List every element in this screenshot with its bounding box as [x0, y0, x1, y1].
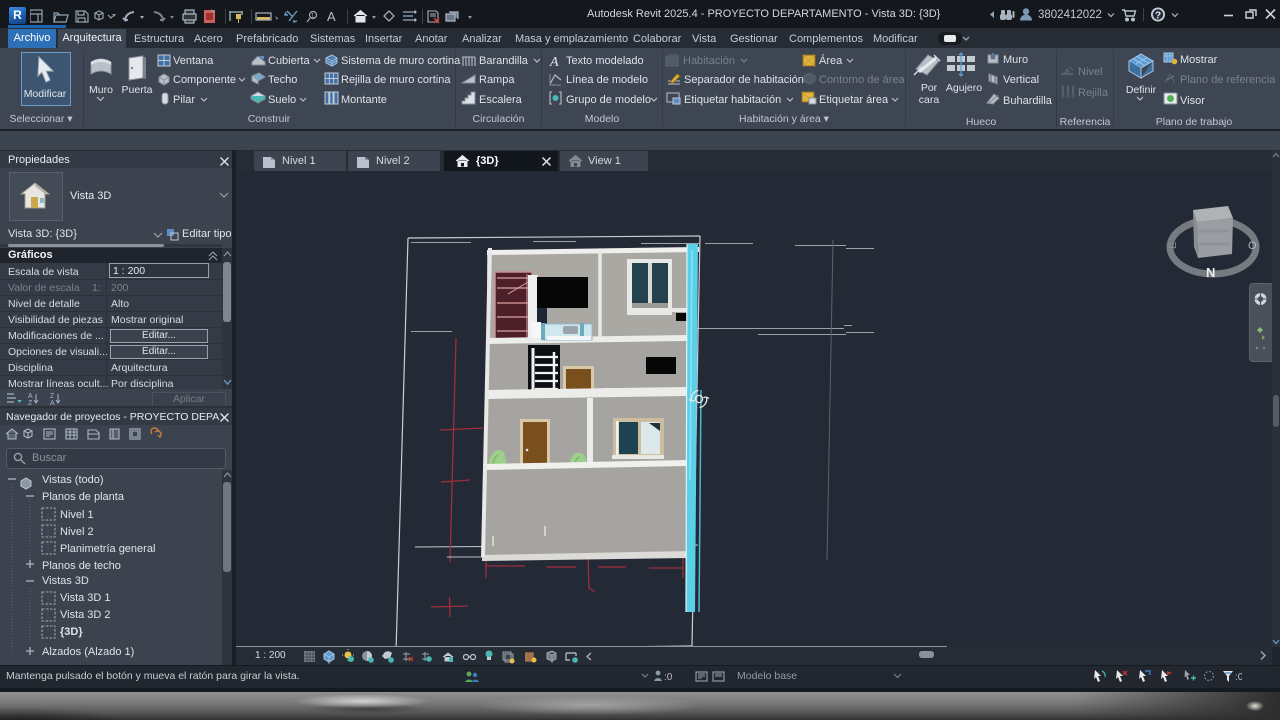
svg-text:Z: Z: [50, 393, 55, 400]
svg-text:Planos de techo: Planos de techo: [42, 560, 121, 572]
svg-text:Alzados (Alzado 1): Alzados (Alzado 1): [42, 646, 134, 658]
svg-text:Planos de planta: Planos de planta: [42, 491, 125, 503]
svg-text:A: A: [549, 55, 559, 67]
svg-text:Vista 3D 2: Vista 3D 2: [60, 609, 111, 621]
svg-text:Planimetría general: Planimetría general: [60, 543, 155, 555]
svg-text:Nivel 1: Nivel 1: [60, 509, 94, 521]
svg-text:E: E: [1167, 242, 1179, 249]
svg-text::0: :0: [1235, 672, 1242, 683]
svg-text:Vista 3D 1: Vista 3D 1: [60, 592, 111, 604]
svg-text:?: ?: [1155, 11, 1161, 22]
svg-text:A: A: [327, 9, 336, 24]
svg-text:O: O: [1248, 240, 1257, 252]
svg-text:Vistas 3D: Vistas 3D: [42, 575, 89, 587]
svg-text:{3D}: {3D}: [60, 626, 83, 638]
svg-text:Nivel 2: Nivel 2: [60, 526, 94, 538]
svg-text:N: N: [1206, 265, 1215, 280]
svg-text:Z: Z: [28, 400, 33, 405]
svg-text:A: A: [50, 400, 55, 405]
svg-text::0: :0: [664, 672, 673, 683]
svg-text:Vistas (todo): Vistas (todo): [42, 474, 104, 486]
svg-text:A: A: [28, 393, 33, 400]
svg-text:3802412022: 3802412022: [1038, 9, 1102, 21]
